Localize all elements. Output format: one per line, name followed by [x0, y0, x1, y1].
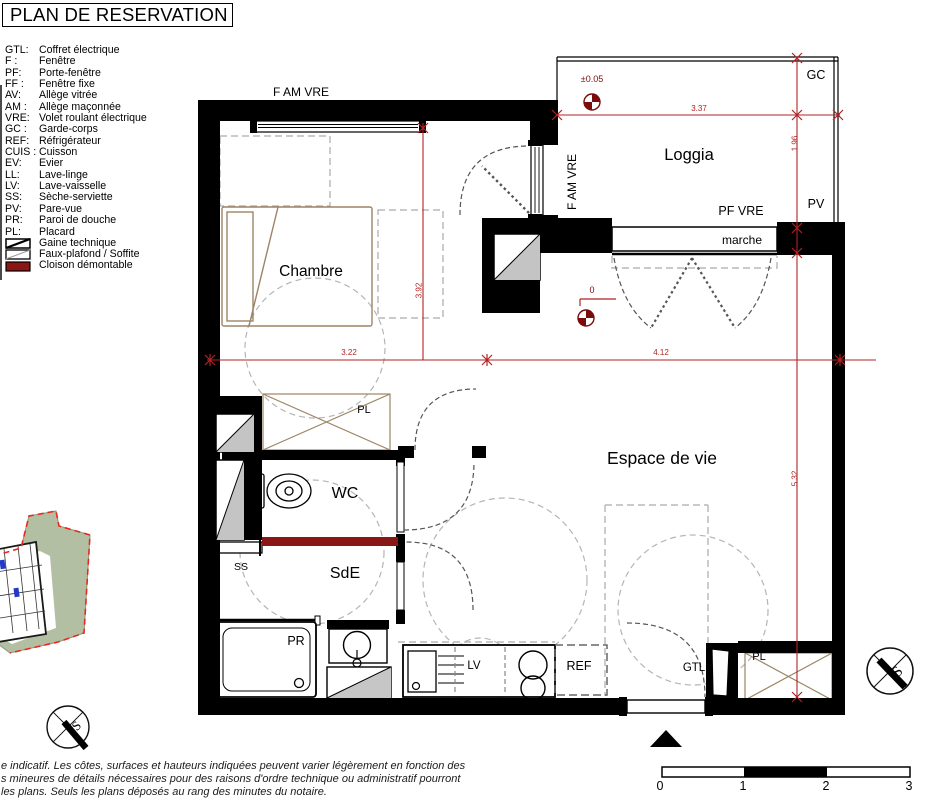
dim-loggia-width: 3.37 — [674, 104, 724, 113]
shower — [213, 616, 320, 697]
dimension-ticks — [205, 53, 845, 702]
level-benchmark-loggia — [584, 94, 600, 110]
gaine-box-basin — [327, 667, 391, 698]
label-pare-vue: PV — [799, 197, 833, 211]
north-arrow — [650, 730, 682, 747]
disclaimer-line-2: s mineures de détails nécessaires pour d… — [1, 773, 460, 785]
scale-label-0: 0 — [653, 779, 667, 793]
compass-south-letter: S — [66, 715, 88, 737]
label-placard-hall: PL — [350, 404, 378, 416]
room-label-sde: SdE — [317, 565, 373, 583]
label-gtl: GTL — [677, 662, 711, 674]
room-label-loggia: Loggia — [629, 146, 749, 165]
scale-label-1: 1 — [736, 779, 750, 793]
room-label-espace-de-vie: Espace de vie — [572, 448, 752, 469]
site-plan-thumbnail — [0, 511, 90, 653]
level-label-loggia: ±0.05 — [567, 74, 617, 84]
disclaimer-line-3: les plans. Seuls les plans déposés au ra… — [1, 786, 327, 798]
compass-south-letter: S — [886, 660, 910, 684]
dim-espace-depth: 5.32 — [784, 465, 806, 491]
label-seche-serviette: SS — [227, 561, 255, 573]
cloison-demontable — [262, 537, 398, 546]
entry-door — [619, 697, 713, 716]
label-pf-vre: PF VRE — [699, 204, 783, 218]
label-paroi-douche: PR — [282, 634, 310, 648]
floor-plan-drawing — [0, 0, 931, 800]
window-label-top: F AM VRE — [249, 85, 353, 99]
scale-label-2: 2 — [819, 779, 833, 793]
label-placard-entry: PL — [746, 651, 772, 663]
dim-chambre-depth: 3.92 — [408, 277, 430, 303]
label-refrigerateur: REF — [559, 659, 599, 673]
disclaimer-line-1: e indicatif. Les côtes, surfaces et haut… — [1, 760, 465, 772]
window-top — [250, 119, 426, 133]
room-label-wc: WC — [317, 485, 373, 503]
label-garde-corps: GC — [799, 68, 833, 82]
window-label-side: F AM VRE — [542, 152, 602, 212]
dim-loggia-depth: 1.96 — [784, 130, 806, 156]
scale-label-3: 3 — [902, 779, 916, 793]
dim-espace-width: 4.12 — [636, 348, 686, 357]
closet-hall — [263, 394, 390, 450]
towel-dryer — [216, 539, 262, 556]
label-marche: marche — [662, 233, 762, 247]
dim-chambre-width: 3.22 — [324, 348, 374, 357]
label-lave-vaisselle: LV — [460, 660, 488, 672]
level-label-main: 0 — [582, 285, 602, 295]
washbasin — [327, 620, 389, 667]
room-label-chambre: Chambre — [251, 263, 371, 281]
level-benchmark-main — [578, 310, 594, 326]
floor-plan-page: PLAN DE RESERVATION GTL:Coffret électriq… — [0, 0, 931, 800]
scale-bar — [662, 767, 910, 777]
